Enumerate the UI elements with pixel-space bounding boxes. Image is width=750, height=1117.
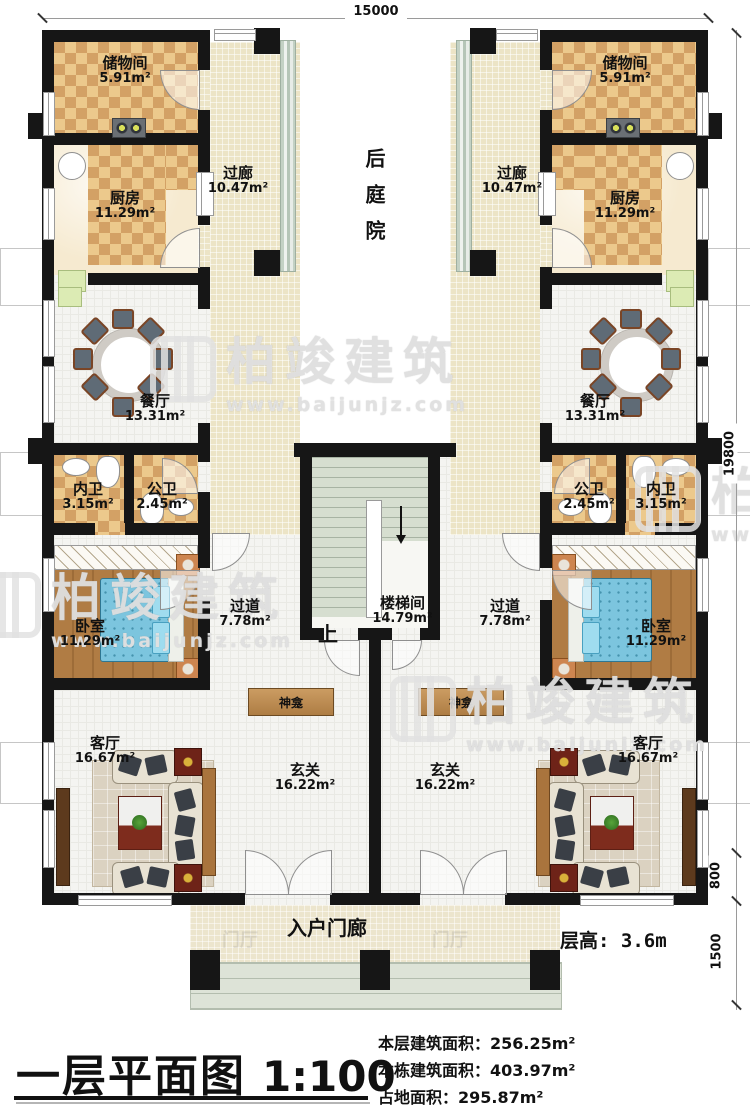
porch-column [530,950,560,990]
room-label-foyer-right: 玄关 16.22m² [395,762,495,793]
dimension-right-value: 19800 [723,424,738,484]
window [214,29,256,41]
room-label-kitchen-right: 厨房 11.29m² [560,190,690,221]
stat-floor-area: 本层建筑面积：256.25m² [378,1030,575,1057]
dining-chair [73,348,93,370]
room-label-gallery-right: 过廊 10.47m² [462,165,562,196]
title-underline-shadow [16,1102,370,1104]
wall [369,628,381,905]
watermark-url: www.baijunjz.com [711,524,750,546]
dining-chair [153,348,173,370]
window [697,558,709,612]
drawing-title: 一层平面图1:100 [16,1040,396,1104]
plan-title: 一层平面图 [16,1051,246,1102]
room-label-gallery-left: 过廊 10.47m² [188,165,288,196]
courtyard-glazing-right [456,40,472,272]
window [43,300,55,357]
exterior-platform [0,248,44,306]
plant-icon [604,815,619,830]
room-label-storage-right: 储物间 5.91m² [560,55,690,86]
wall [125,523,198,535]
stat-footprint-area: 占地面积：295.87m² [378,1084,575,1111]
wall [54,443,210,455]
porch-column [360,950,390,990]
room-label-ensuite-left: 内卫 3.15m² [48,481,128,512]
courtyard-glazing-left [280,40,296,272]
brand-logo-icon [0,572,41,638]
tv-cabinet [56,788,70,886]
exterior-platform [0,742,46,804]
door-opening [540,225,552,267]
pillow [582,622,600,654]
column [470,28,496,54]
sofa-cushion [146,866,169,888]
dining-chair [581,348,601,370]
side-table [550,748,578,776]
wall [198,423,210,443]
sofa-cushion [175,839,196,861]
column [254,250,280,276]
window [697,366,709,423]
dimension-line-right [736,30,737,1010]
bath-sink [662,458,690,476]
exterior-platform [708,248,750,306]
kitchen-sink [666,152,694,180]
room-label-foyer-left: 玄关 16.22m² [255,762,355,793]
wall [330,893,420,905]
wall [300,443,312,640]
dimension-1500-value: 1500 [710,927,725,977]
column [254,28,280,54]
plan-scale: 1:100 [262,1052,396,1101]
side-table [174,864,202,892]
room-label-living-left: 客厅 16.67m² [45,735,165,766]
window [43,366,55,423]
porch-ghost-label: 门厅 [222,926,258,952]
window [697,300,709,357]
dining-chair [620,309,642,329]
window [580,895,674,906]
room-label-living-right: 客厅 16.67m² [588,735,708,766]
wall [198,443,210,462]
window [43,92,55,136]
side-table [174,748,202,776]
shrine-label: 神龛 [449,694,473,711]
window [496,29,538,41]
dimension-800-value: 800 [709,856,724,896]
room-label-bedroom-right: 卧室 11.29m² [606,618,706,649]
pier [706,438,722,464]
window [697,810,709,868]
stove-icon [112,118,146,138]
room-label-passage-right: 过道 7.78m² [455,598,555,629]
bath-sink [62,458,90,476]
sofa-cushion [554,815,575,838]
planter [58,287,82,307]
media-wall-right [536,768,550,876]
window [43,558,55,612]
window [43,810,55,868]
floor-plan: 神龛 神龛 柏竣建筑 www.baijunjz.com 柏竣建筑 www.bai… [0,0,750,1117]
room-label-stairwell: 楼梯间 14.79m² [340,595,465,626]
stat-building-area: 本栋建筑面积：403.97m² [378,1057,575,1084]
window [697,92,709,136]
porch-ghost-label: 门厅 [432,926,468,952]
wall [655,523,696,535]
shrine-label: 神龛 [279,694,303,711]
wall [42,30,210,42]
room-label-dining-left: 餐厅 13.31m² [90,393,220,424]
dimension-top-value: 15000 [345,4,407,19]
stair-up-label: 上 [318,618,338,647]
planter [670,287,694,307]
shrine-console-left: 神龛 [248,688,334,716]
media-wall-left [202,768,216,876]
dining-chair [661,348,681,370]
room-label-bedroom-left: 卧室 11.29m² [40,618,140,649]
exterior-platform [706,742,750,804]
room-label-ensuite-right: 内卫 3.15m² [621,481,701,512]
stair-arrow-head [396,535,406,544]
column [470,250,496,276]
wall [540,273,662,285]
porch-column [190,950,220,990]
window [697,188,709,240]
room-label-dining-right: 餐厅 13.31m² [530,393,660,424]
kitchen-sink [58,152,86,180]
pillow [152,622,170,654]
wall [540,443,552,462]
door-opening [540,70,552,110]
shrine-console-right: 神龛 [418,688,504,716]
plant-icon [132,815,147,830]
wall [540,30,708,42]
wall [540,423,552,443]
wall [540,535,552,568]
sofa-cushion [555,839,576,861]
wall [198,287,210,309]
tv-cabinet [682,788,696,886]
wall [420,628,440,640]
window [78,895,172,906]
room-label-courtyard: 后庭院 [360,148,389,318]
room-label-publicbath-right: 公卫 2.45m² [549,481,629,512]
stove-icon [606,118,640,138]
room-label-storage-left: 储物间 5.91m² [60,55,190,86]
room-label-kitchen-left: 厨房 11.29m² [60,190,190,221]
stair-treads [312,457,366,617]
wall [54,678,210,690]
wall [552,523,625,535]
wall [540,287,552,309]
room-label-publicbath-left: 公卫 2.45m² [122,481,202,512]
window [43,188,55,240]
floor-height-label: 层高: 3.6m [560,926,667,953]
wall [198,535,210,568]
stair-direction-arrow [400,506,402,536]
dining-chair [112,309,134,329]
wall [54,523,95,535]
title-underline [14,1096,368,1100]
wall [88,273,210,285]
side-table [550,864,578,892]
wall [540,443,696,455]
room-label-passage-left: 过道 7.78m² [195,598,295,629]
room-label-porch: 入户门廊 [287,912,367,941]
wall [540,678,696,690]
area-stats: 本层建筑面积：256.25m² 本栋建筑面积：403.97m² 占地面积：295… [378,1030,575,1111]
sofa-cushion [174,815,195,838]
